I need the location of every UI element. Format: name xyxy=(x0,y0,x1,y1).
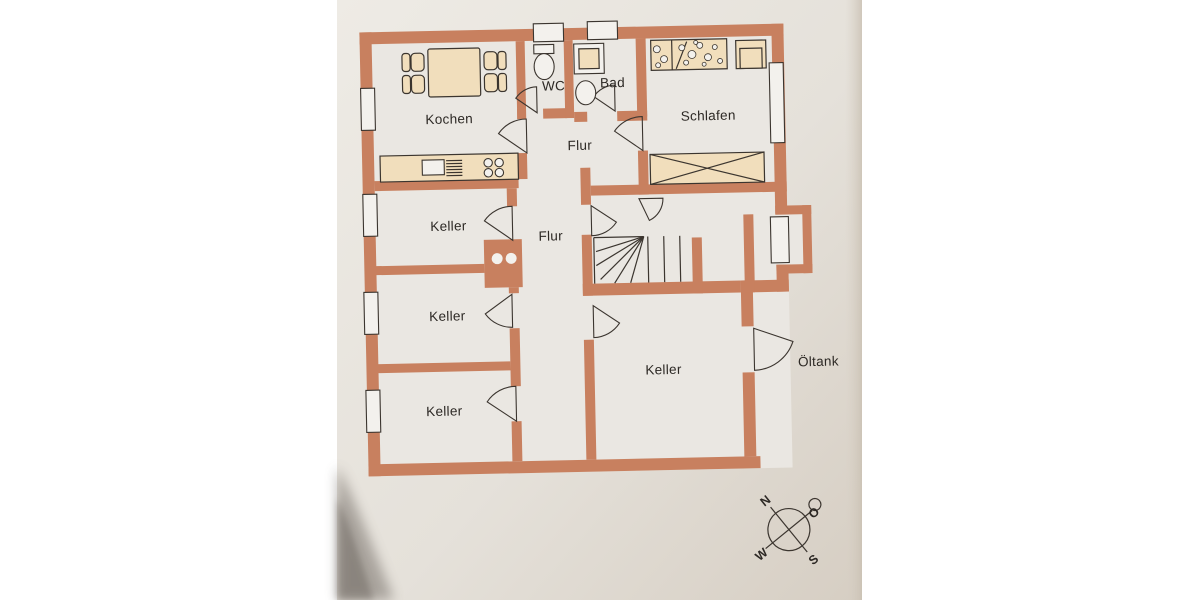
kitchen-counter xyxy=(380,153,519,182)
label-keller-3: Keller xyxy=(426,403,463,419)
label-kochen: Kochen xyxy=(425,111,473,127)
toilet xyxy=(534,53,555,79)
washbasin xyxy=(575,81,595,105)
sink xyxy=(422,160,444,175)
label-keller-1: Keller xyxy=(430,218,467,234)
chair xyxy=(402,53,424,71)
paper-right-edge xyxy=(845,0,862,600)
chimney xyxy=(484,239,523,288)
chair xyxy=(484,51,506,69)
wardrobe xyxy=(650,152,765,184)
shower-tray xyxy=(579,48,599,68)
floorplan-svg: Kochen WC Bad Schlafen Flur Keller Flur … xyxy=(0,0,1200,600)
dining-table xyxy=(428,48,481,97)
window-kochen xyxy=(361,88,376,130)
toilet-tank xyxy=(534,44,554,53)
window-keller1 xyxy=(363,194,378,236)
armchair-seat xyxy=(740,48,762,68)
label-oeltank: Öltank xyxy=(798,354,839,370)
label-flur-mid: Flur xyxy=(538,228,563,244)
window-schlafen xyxy=(769,63,785,143)
door-bumpout xyxy=(770,217,789,263)
label-schlafen: Schlafen xyxy=(681,108,736,124)
chair xyxy=(402,75,424,93)
chair xyxy=(484,73,506,91)
label-flur-top: Flur xyxy=(567,138,592,154)
label-wc: WC xyxy=(542,78,565,93)
label-keller-2: Keller xyxy=(429,308,466,324)
floorplan-photo: Kochen WC Bad Schlafen Flur Keller Flur … xyxy=(0,0,1200,600)
label-bad: Bad xyxy=(600,75,625,91)
window-keller3 xyxy=(366,390,381,432)
lightwell-bad xyxy=(587,21,617,40)
lightwell-wc xyxy=(533,23,563,42)
label-keller-4: Keller xyxy=(645,362,682,378)
window-keller2 xyxy=(364,292,379,334)
